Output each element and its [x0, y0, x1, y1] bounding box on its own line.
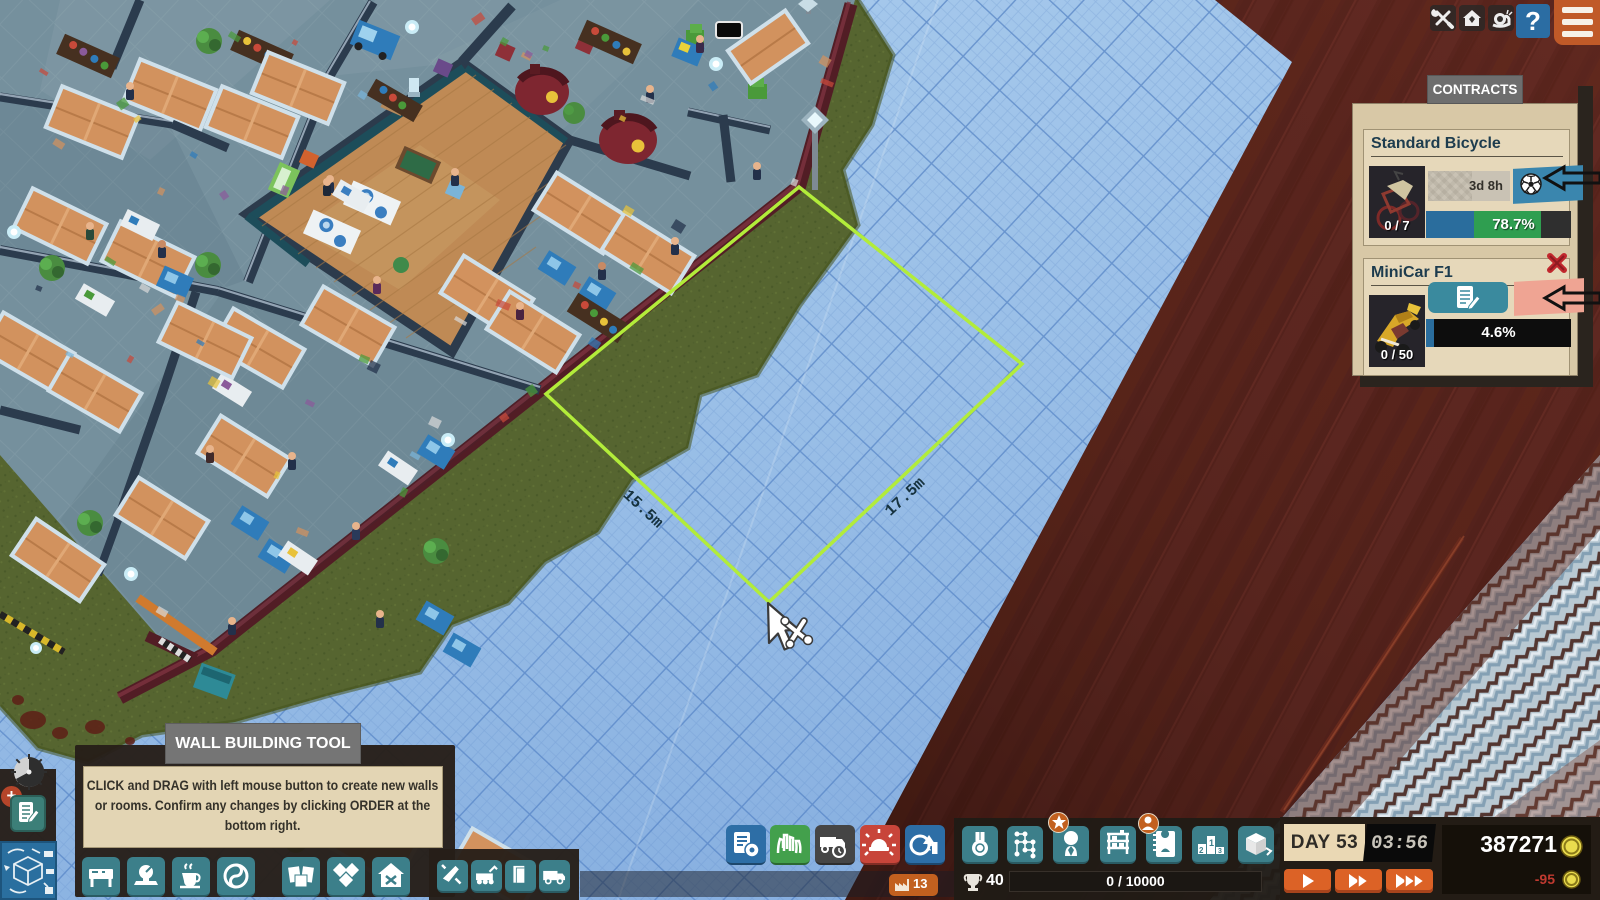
svg-text:1: 1	[1209, 838, 1214, 848]
svg-text:2: 2	[1199, 846, 1204, 855]
svg-text:3: 3	[1218, 848, 1222, 855]
